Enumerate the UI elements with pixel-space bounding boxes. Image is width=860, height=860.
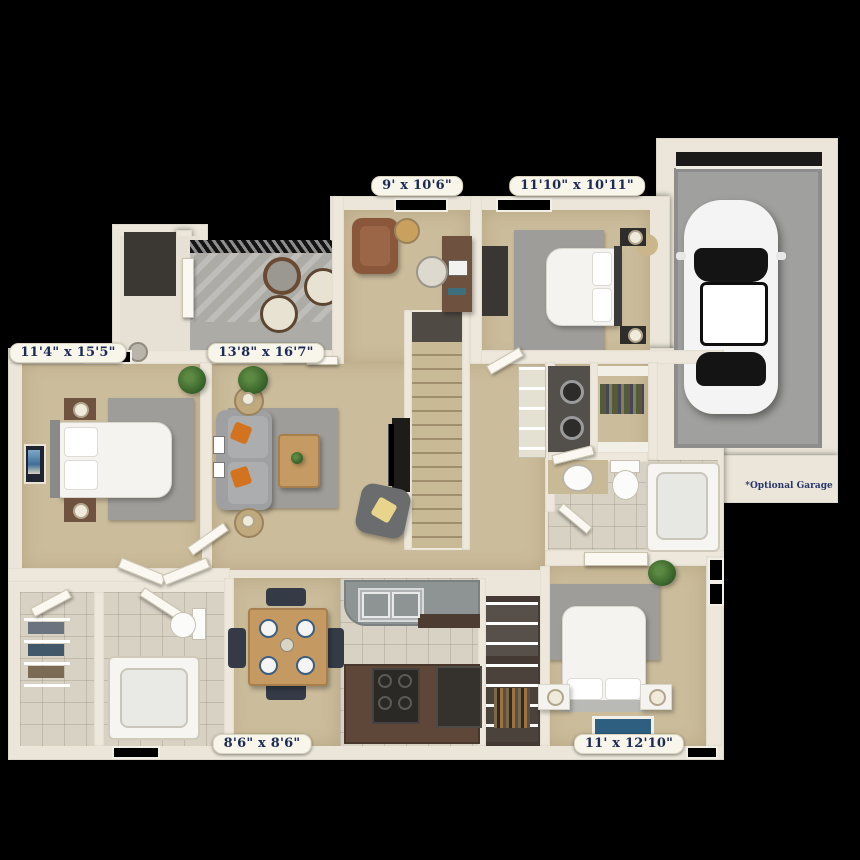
linen-shelves xyxy=(518,366,546,458)
pillow xyxy=(605,678,641,700)
armchair-cushion xyxy=(360,226,390,266)
room-dimension-label: 11' x 12'10" xyxy=(574,734,684,754)
sink xyxy=(562,464,594,492)
laptop xyxy=(448,260,468,276)
folded-clothes xyxy=(28,644,64,656)
bed-headboard xyxy=(50,420,60,498)
closet-sliding-doors xyxy=(584,552,648,566)
bed-footboard xyxy=(560,700,646,712)
car-mirror xyxy=(676,252,686,260)
tv xyxy=(388,424,394,486)
room-dimension-label: 11'4" x 15'5" xyxy=(9,343,126,363)
lamp xyxy=(547,689,564,706)
patio-railing xyxy=(190,240,338,253)
pillow xyxy=(64,427,98,457)
room-dimension-label: 11'10" x 10'11" xyxy=(509,176,645,196)
closet-shelf xyxy=(598,442,648,452)
lamp xyxy=(649,689,666,706)
dresser xyxy=(482,246,508,316)
tv-stand xyxy=(392,418,410,492)
window xyxy=(496,198,552,212)
burner xyxy=(398,674,412,688)
wall-art-print xyxy=(28,450,40,474)
dining-chair xyxy=(228,628,246,668)
garage-apron xyxy=(718,455,838,503)
garage-door-track xyxy=(676,166,822,169)
closet-shelf xyxy=(24,640,70,643)
hanging-clothes xyxy=(494,688,530,728)
window xyxy=(394,198,448,212)
entry-closet-nook xyxy=(124,232,176,296)
refrigerator xyxy=(436,666,482,728)
closet-shelf xyxy=(24,684,70,687)
dining-chair xyxy=(326,628,344,668)
plate xyxy=(296,656,315,675)
floor-plan: 9' x 10'6" 11'10" x 10'11" 11'4" x 15'5"… xyxy=(0,0,860,860)
burner xyxy=(378,674,392,688)
lamp xyxy=(241,392,255,406)
lamp xyxy=(628,230,643,245)
books xyxy=(448,288,466,295)
closet-shelf xyxy=(598,366,648,376)
bathtub-basin xyxy=(120,668,188,728)
lamp xyxy=(241,514,255,528)
dining-chair xyxy=(266,588,306,606)
plate xyxy=(259,656,278,675)
door xyxy=(182,258,194,318)
closet-shelf xyxy=(24,618,70,621)
office-chair xyxy=(416,256,448,288)
room-dimension-label: 9' x 10'6" xyxy=(371,176,463,196)
window xyxy=(112,746,160,759)
room-dimension-label: 8'6" x 8'6" xyxy=(213,734,312,754)
washer-door xyxy=(560,380,584,404)
window xyxy=(708,582,724,606)
optional-garage-note: *Optional Garage xyxy=(745,481,832,491)
toilet xyxy=(170,612,196,638)
upper-cabinet xyxy=(418,614,480,628)
burner xyxy=(398,696,412,710)
sink-basin xyxy=(392,592,420,618)
plate xyxy=(296,619,315,638)
lamp xyxy=(73,402,89,418)
closet-shelf xyxy=(24,662,70,665)
window xyxy=(708,558,724,582)
plant xyxy=(291,452,303,464)
wall xyxy=(462,310,470,550)
wall-art xyxy=(213,462,225,478)
toilet xyxy=(612,470,639,500)
centerpiece xyxy=(280,638,294,652)
car-rear-window xyxy=(696,352,766,386)
wall xyxy=(332,196,344,364)
dryer-door xyxy=(560,416,584,440)
side-table xyxy=(394,218,420,244)
pantry-shelves xyxy=(486,602,538,656)
window xyxy=(686,746,718,759)
pillow xyxy=(592,252,612,286)
pillow xyxy=(567,678,603,700)
pillow xyxy=(592,288,612,322)
garage-door xyxy=(676,152,822,166)
plate xyxy=(259,619,278,638)
wall xyxy=(540,566,550,746)
burner xyxy=(378,696,392,710)
patio-chair xyxy=(260,295,298,333)
stair-landing xyxy=(412,312,462,342)
sink-basin xyxy=(362,592,390,618)
bed-headboard xyxy=(614,246,622,326)
patio-table xyxy=(263,257,301,295)
lamp xyxy=(628,328,643,343)
hanging-clothes xyxy=(600,384,644,414)
plant xyxy=(648,560,676,586)
car-mirror xyxy=(776,252,786,260)
folded-clothes xyxy=(28,622,64,634)
wall-art xyxy=(213,436,225,454)
lamp xyxy=(73,503,89,519)
stairs xyxy=(412,342,462,548)
pillow xyxy=(64,460,98,490)
bathtub-basin xyxy=(656,472,708,540)
car-windshield xyxy=(694,248,768,282)
wall xyxy=(94,592,104,746)
wall xyxy=(648,362,658,460)
room-dimension-label: 13'8" x 16'7" xyxy=(207,343,324,363)
plant xyxy=(238,366,268,394)
car-roof xyxy=(700,282,768,346)
plant xyxy=(178,366,206,394)
folded-clothes xyxy=(28,666,64,678)
